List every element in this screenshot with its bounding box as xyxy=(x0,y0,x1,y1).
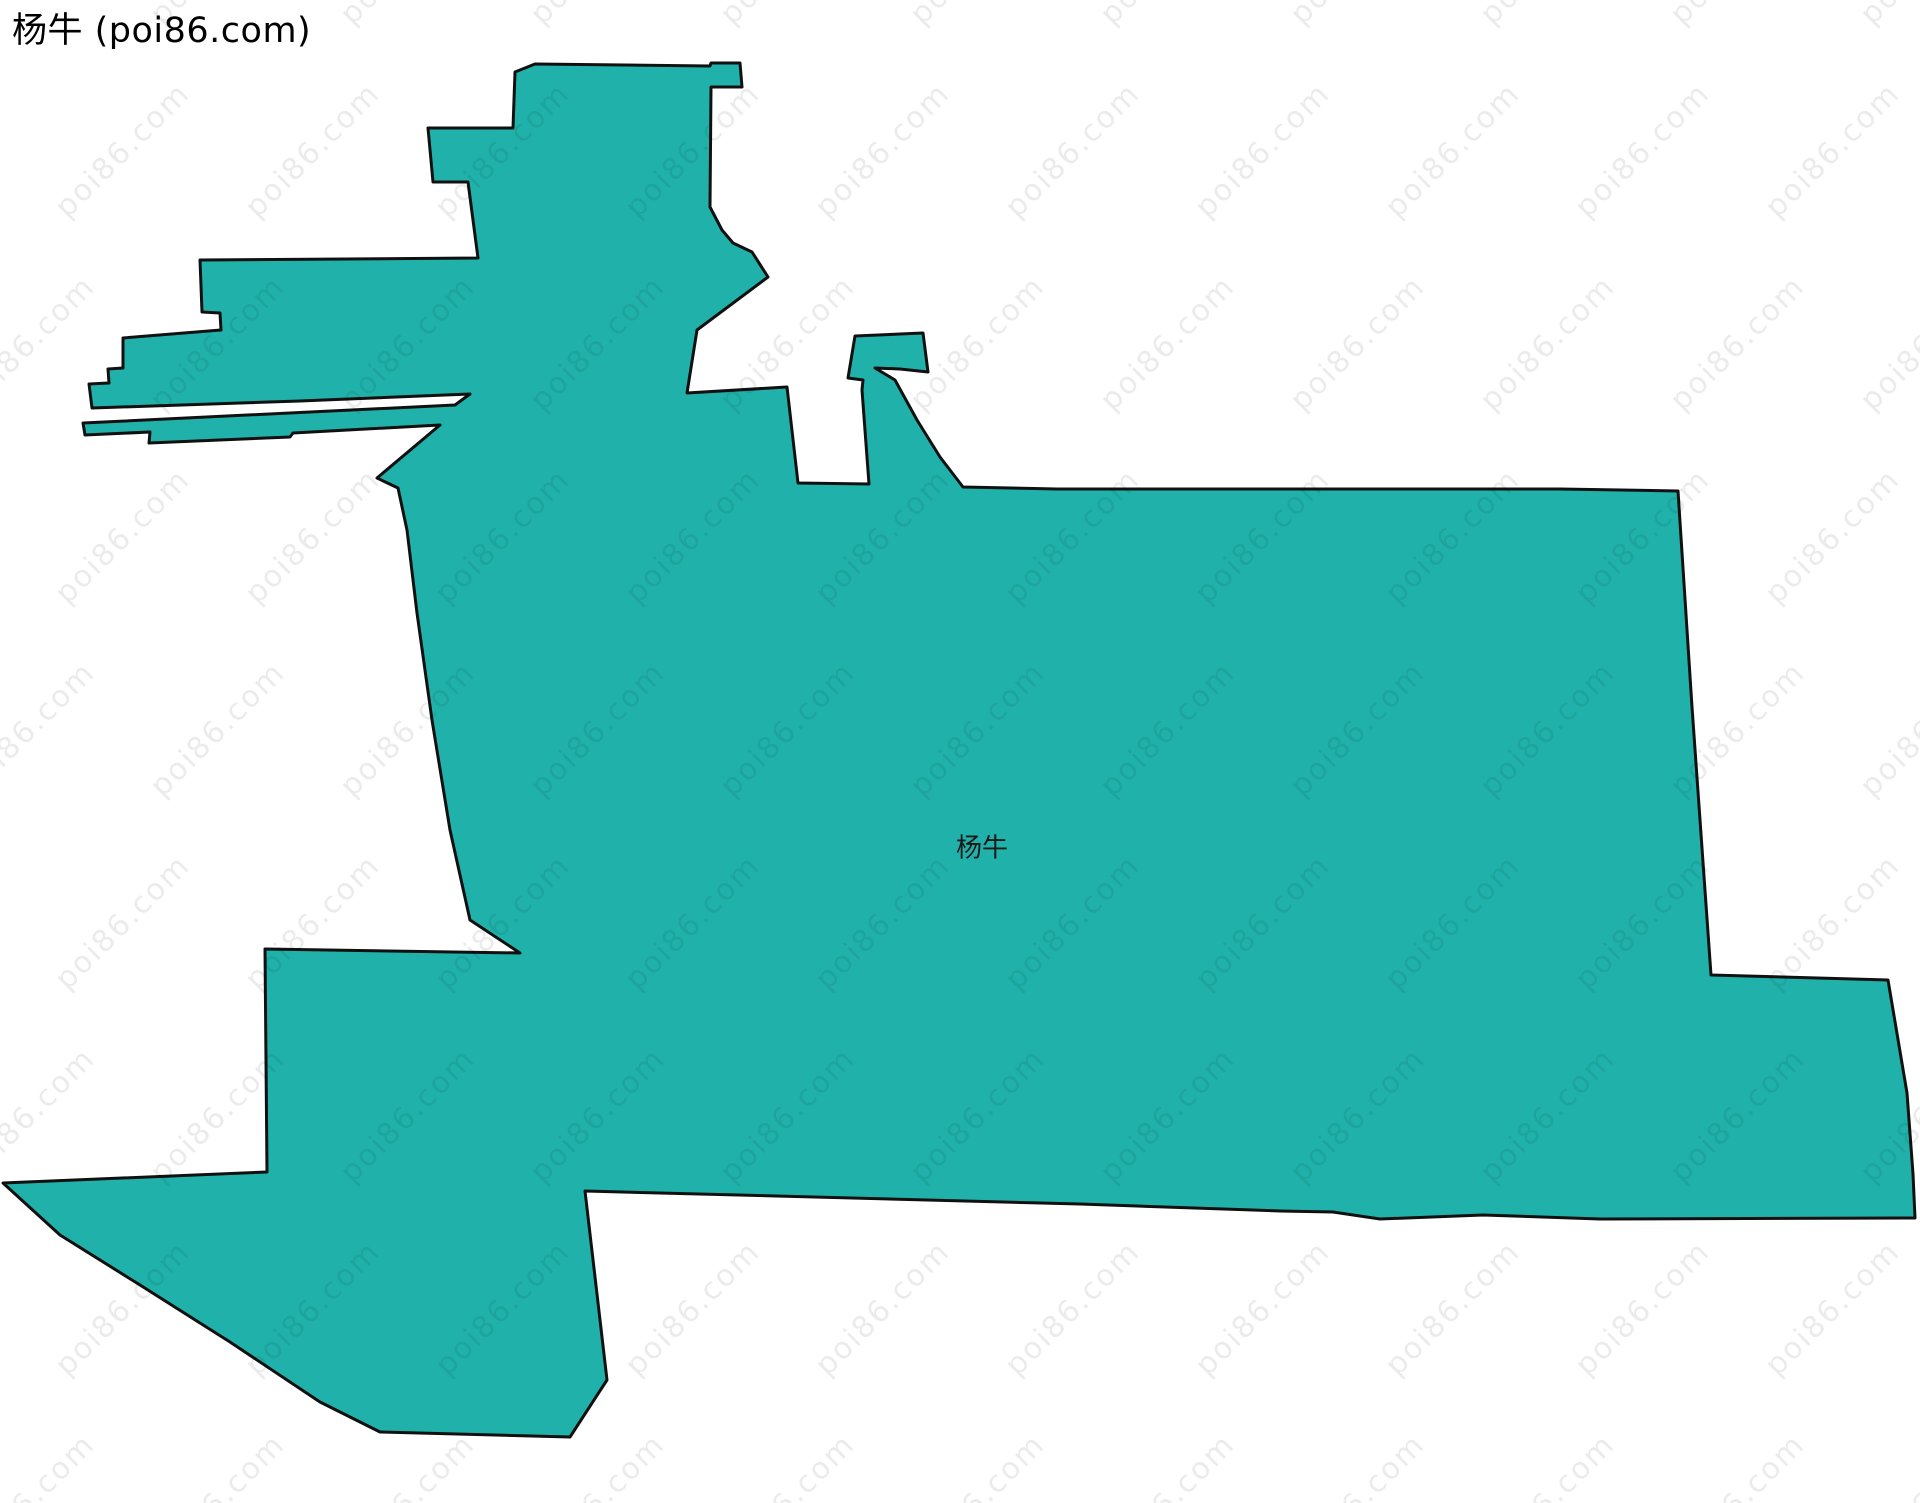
region-label: 杨牛 xyxy=(956,828,1008,865)
map-page: poi86.compoi86.compoi86.compoi86.compoi8… xyxy=(0,0,1920,1503)
page-title: 杨牛 (poi86.com) xyxy=(12,10,311,52)
region-boundary[interactable] xyxy=(3,63,1915,1437)
region-map xyxy=(0,0,1920,1503)
